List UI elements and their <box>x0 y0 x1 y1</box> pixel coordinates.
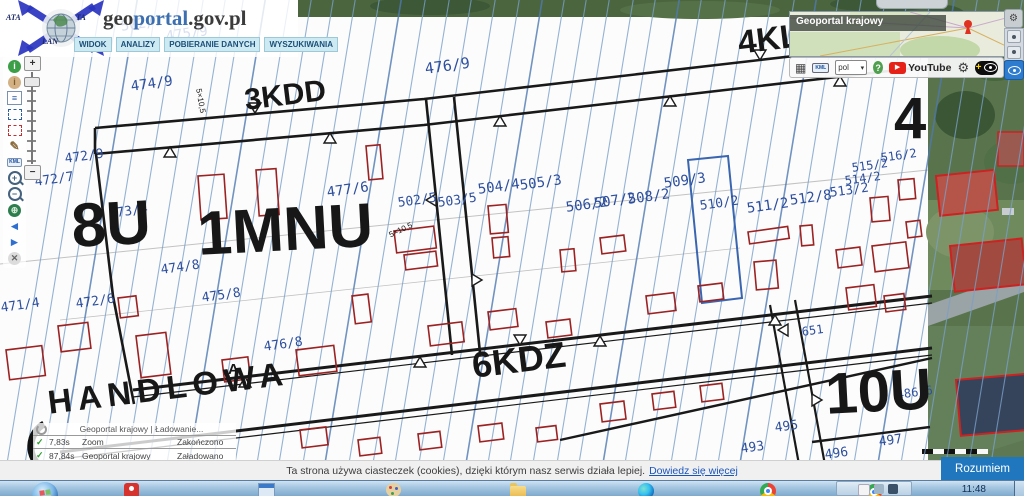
language-select[interactable]: pol▾ <box>835 60 867 75</box>
logo-ring-text: ATA <box>6 13 21 22</box>
windows-flag-icon <box>39 489 51 496</box>
youtube-label: YouTube <box>908 62 951 74</box>
info-tool-icon[interactable]: i <box>6 59 23 73</box>
title-suffix: .gov.pl <box>188 6 246 30</box>
settings-gear-icon[interactable]: ⚙ <box>957 61 969 74</box>
chrome-browser-icon <box>760 483 776 496</box>
layer-toggle-button-1[interactable] <box>1007 30 1021 43</box>
previous-view-arrow-icon[interactable]: ◄ <box>6 219 23 233</box>
zoom-slider-handle[interactable] <box>24 77 40 87</box>
plus-icon: + <box>976 63 982 73</box>
tray-icon[interactable] <box>874 484 884 494</box>
status-layer: Zoom <box>82 437 174 447</box>
system-window-app-icon <box>258 483 275 496</box>
next-view-arrow-icon[interactable]: ► <box>6 235 23 249</box>
status-state: Załadowano <box>177 451 233 461</box>
previous-view-arrow-icon-glyph: ◄ <box>9 220 21 232</box>
main-menu: WIDOKANALIZYPOBIERANIE DANYCHWYSZUKIWANI… <box>74 37 338 52</box>
pinned-app-red-icon <box>124 483 139 496</box>
windows-taskbar: 11:48 <box>0 480 1024 496</box>
file-explorer-icon <box>510 486 526 496</box>
cookie-accept-button[interactable]: Rozumiem <box>941 457 1024 481</box>
menu-wyszukiwania[interactable]: WYSZUKIWANIA <box>264 37 338 52</box>
map-tools-toolbar: ii≡✎KML+−⊕◄►✕ <box>3 56 26 268</box>
zoom-slider: + − <box>24 56 40 180</box>
title-portal: portal <box>133 6 188 30</box>
overview-map-panel[interactable]: Geoportal krajowy <box>789 11 1007 57</box>
system-window-app[interactable] <box>258 483 275 496</box>
help-button[interactable]: ? <box>873 61 883 74</box>
kml-icon[interactable]: KML <box>812 63 829 73</box>
zoom-slider-track[interactable] <box>24 72 39 164</box>
zoom-in-tool-icon[interactable]: + <box>6 171 23 185</box>
brand-panel: ATATALAN geoportal.gov.pl WIDOKANALIZYPO… <box>0 0 298 57</box>
next-view-arrow-icon-glyph: ► <box>9 236 21 248</box>
status-row-1: Geoportal krajowy | Ładowanie... <box>33 423 236 436</box>
title-geo: geo <box>103 6 133 30</box>
dot-icon <box>1012 35 1016 39</box>
select-area-tool-icon-glyph <box>8 109 22 120</box>
share-toolbar: ▦ KML pol▾ ? ▶ YouTube ⚙ + <box>789 57 1004 78</box>
kml-export-tool-icon-glyph: KML <box>7 158 22 167</box>
pinned-app-red[interactable] <box>124 483 141 496</box>
measure-tool-icon[interactable]: ✎ <box>6 139 23 153</box>
map-scale-bar <box>922 449 988 454</box>
check-icon: ✓ <box>36 437 46 448</box>
edge-browser[interactable] <box>638 483 655 496</box>
visibility-button[interactable] <box>1004 60 1024 80</box>
language-value: pol <box>838 63 849 72</box>
start-button[interactable] <box>32 482 58 496</box>
cookie-more-link[interactable]: Dowiedz się więcej <box>649 465 738 477</box>
status-layer: Geoportal krajowy <box>82 451 174 461</box>
overview-map-title: Geoportal krajowy <box>790 15 946 31</box>
kml-export-tool-icon[interactable]: KML <box>6 155 23 169</box>
layer-toggle-button-2[interactable] <box>1007 46 1021 59</box>
panel-settings-button[interactable]: ⚙ <box>1004 9 1023 28</box>
youtube-play-icon: ▶ <box>889 62 906 74</box>
map-style-switcher <box>1004 28 1024 61</box>
geoportal-app-window: 502/7475/9476/9474/9472/9472/7473/4477/6… <box>0 0 1024 496</box>
dot-icon <box>1012 50 1016 54</box>
taskbar-clock[interactable]: 11:48 <box>962 484 986 495</box>
youtube-button[interactable]: ▶ YouTube <box>889 62 951 74</box>
identify-tool-icon[interactable]: i <box>6 75 23 89</box>
status-time: 87,84s <box>49 451 79 461</box>
clear-map-icon[interactable]: ✕ <box>6 251 23 265</box>
full-extent-globe-icon[interactable]: ⊕ <box>6 203 23 217</box>
tray-icon[interactable] <box>858 484 870 496</box>
zoom-out-tool-icon-glyph: − <box>8 187 22 201</box>
chrome-browser[interactable] <box>760 483 777 496</box>
status-state: Zakończono <box>177 437 233 447</box>
add-visibility-pill[interactable]: + <box>975 61 998 75</box>
zoom-in-tool-icon-glyph: + <box>8 171 22 185</box>
file-explorer[interactable] <box>510 483 527 496</box>
status-time: 7,83s <box>49 437 79 447</box>
edge-browser-icon <box>638 483 654 496</box>
menu-widok[interactable]: WIDOK <box>74 37 112 52</box>
info-tool-icon-glyph: i <box>8 60 21 73</box>
menu-analizy[interactable]: ANALIZY <box>116 37 161 52</box>
gear-icon: ⚙ <box>1009 13 1018 24</box>
measure-tool-icon-glyph: ✎ <box>9 140 19 152</box>
identify-tool-icon-glyph: i <box>8 76 21 89</box>
site-title[interactable]: geoportal.gov.pl <box>103 6 247 31</box>
eye-icon <box>984 63 997 72</box>
system-tray[interactable] <box>858 484 898 496</box>
legend-tool-icon[interactable]: ≡ <box>6 91 23 105</box>
paint-app[interactable] <box>386 483 403 496</box>
grid-icon[interactable]: ▦ <box>795 62 806 74</box>
chevron-down-icon: ▾ <box>861 64 865 72</box>
clear-map-icon-glyph: ✕ <box>8 252 21 265</box>
zoom-in-button[interactable]: + <box>24 56 41 71</box>
tray-icon[interactable] <box>888 484 898 494</box>
zoom-out-tool-icon[interactable]: − <box>6 187 23 201</box>
eye-icon <box>1008 66 1021 75</box>
zoom-out-button[interactable]: − <box>24 165 41 180</box>
loading-status-panel: Geoportal krajowy | Ładowanie...✓7,83sZo… <box>33 423 236 461</box>
cookie-message: Ta strona używa ciasteczek (cookies), dz… <box>286 465 645 477</box>
legend-tool-icon-glyph: ≡ <box>7 91 22 105</box>
status-row-2: ✓7,83sZoomZakończono <box>33 436 236 449</box>
paint-app-icon <box>386 483 401 496</box>
full-extent-globe-icon-glyph: ⊕ <box>8 204 21 217</box>
logo-ring-text: TA <box>76 13 86 22</box>
clear-selection-tool-icon[interactable] <box>6 123 23 137</box>
status-text: Geoportal krajowy | Ładowanie... <box>50 424 233 434</box>
show-desktop-button[interactable] <box>1014 481 1024 496</box>
spinner-icon <box>36 424 47 435</box>
clear-selection-tool-icon-glyph <box>8 125 22 136</box>
menu-pobieranie-danych[interactable]: POBIERANIE DANYCH <box>164 37 260 52</box>
logo-ring-text: LAN <box>42 37 58 46</box>
select-area-tool-icon[interactable] <box>6 107 23 121</box>
collapsed-panel-tab[interactable] <box>876 0 948 9</box>
cookie-notice-bar: Ta strona używa ciasteczek (cookies), dz… <box>0 460 1024 481</box>
